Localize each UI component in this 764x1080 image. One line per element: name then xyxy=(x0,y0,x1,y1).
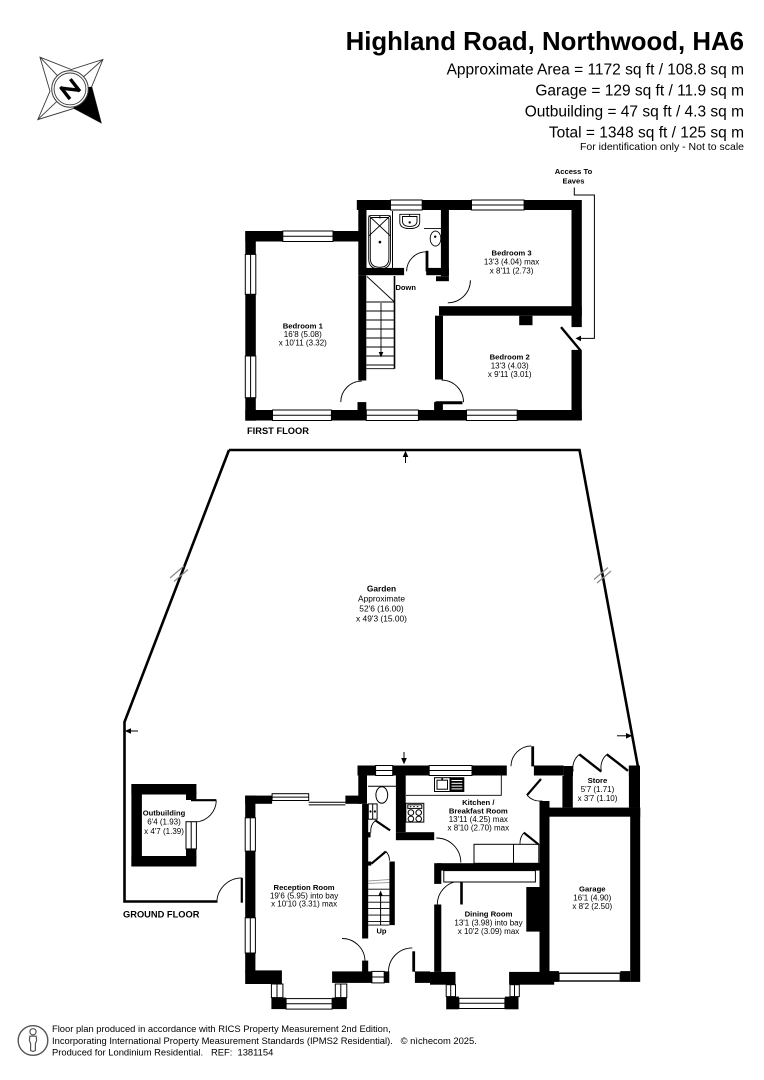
svg-text:x 8'2 (2.50): x 8'2 (2.50) xyxy=(572,902,612,911)
svg-text:Outbuilding: Outbuilding xyxy=(143,809,186,818)
svg-text:13'3 (4.03): 13'3 (4.03) xyxy=(491,361,529,370)
svg-text:x 10'10 (3.31) max: x 10'10 (3.31) max xyxy=(271,900,337,909)
svg-text:Highland Road, Northwood, HA6: Highland Road, Northwood, HA6 xyxy=(346,28,744,56)
svg-text:x 8'11 (2.73): x 8'11 (2.73) xyxy=(490,266,534,275)
svg-text:Dining Room: Dining Room xyxy=(465,910,513,919)
svg-text:Access To: Access To xyxy=(555,167,593,176)
svg-text:Store: Store xyxy=(588,776,608,785)
svg-text:Outbuilding = 47 sq ft / 4.3 s: Outbuilding = 47 sq ft / 4.3 sq m xyxy=(525,104,744,121)
svg-text:Total = 1348 sq ft / 125 sq m: Total = 1348 sq ft / 125 sq m xyxy=(549,125,744,142)
svg-text:x 9'11 (3.01): x 9'11 (3.01) xyxy=(488,370,532,379)
svg-text:Floor plan produced in accorda: Floor plan produced in accordance with R… xyxy=(52,1023,391,1034)
svg-text:Produced for Londinium Residen: Produced for Londinium Residential. REF:… xyxy=(52,1047,273,1058)
svg-text:Garden: Garden xyxy=(367,584,396,594)
svg-text:52'6 (16.00): 52'6 (16.00) xyxy=(359,604,404,614)
svg-text:x 49'3 (15.00): x 49'3 (15.00) xyxy=(356,614,407,624)
svg-text:Incorporating International Pr: Incorporating International Property Mea… xyxy=(52,1035,477,1046)
svg-text:Down: Down xyxy=(396,283,417,292)
svg-text:5'7 (1.71): 5'7 (1.71) xyxy=(581,785,615,794)
svg-text:Bedroom 3: Bedroom 3 xyxy=(492,249,532,258)
svg-text:6'4 (1.93): 6'4 (1.93) xyxy=(147,818,181,827)
svg-text:Garage: Garage xyxy=(579,885,606,894)
svg-text:13'1 (3.98) into bay: 13'1 (3.98) into bay xyxy=(454,918,522,927)
svg-text:GROUND FLOOR: GROUND FLOOR xyxy=(123,910,200,920)
svg-text:13'3 (4.04) max: 13'3 (4.04) max xyxy=(484,258,539,267)
svg-text:x 10'11 (3.32): x 10'11 (3.32) xyxy=(279,338,327,347)
svg-text:Garage = 129 sq ft / 11.9 sq m: Garage = 129 sq ft / 11.9 sq m xyxy=(535,83,744,100)
svg-text:x 3'7 (1.10): x 3'7 (1.10) xyxy=(578,794,618,803)
svg-text:For identification only - Not: For identification only - Not to scale xyxy=(580,141,744,153)
svg-text:x 8'10 (2.70) max: x 8'10 (2.70) max xyxy=(448,824,510,833)
svg-text:x 4'7 (1.39): x 4'7 (1.39) xyxy=(144,827,184,836)
svg-text:x 10'2 (3.09) max: x 10'2 (3.09) max xyxy=(458,927,520,936)
svg-text:Eaves: Eaves xyxy=(563,177,585,186)
svg-text:Approximate Area = 1172 sq ft: Approximate Area = 1172 sq ft / 108.8 sq… xyxy=(447,62,744,79)
svg-text:16'1 (4.90): 16'1 (4.90) xyxy=(573,893,611,902)
svg-text:Bedroom 2: Bedroom 2 xyxy=(490,353,530,362)
svg-text:Up: Up xyxy=(377,927,387,936)
svg-text:FIRST FLOOR: FIRST FLOOR xyxy=(247,426,309,436)
svg-text:Approximate: Approximate xyxy=(358,594,405,604)
